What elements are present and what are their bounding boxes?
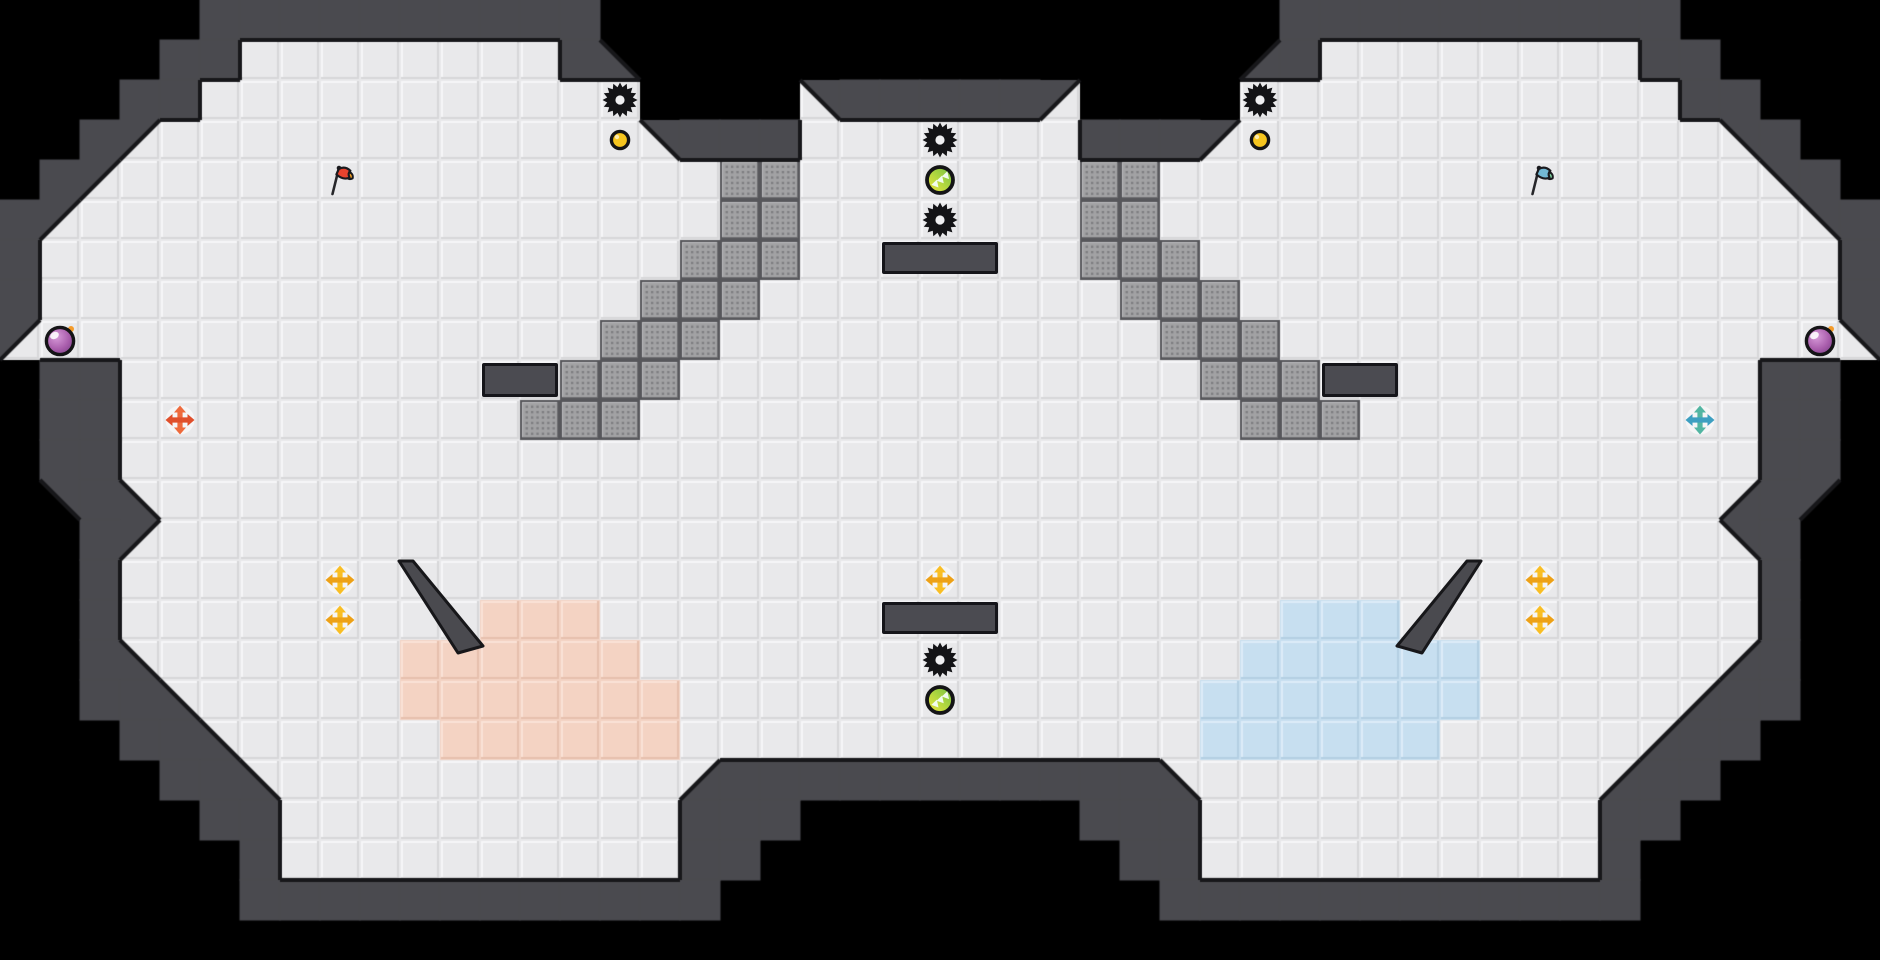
tile-map-arena: [0, 0, 1880, 960]
map-terrain-canvas[interactable]: [0, 0, 1880, 960]
